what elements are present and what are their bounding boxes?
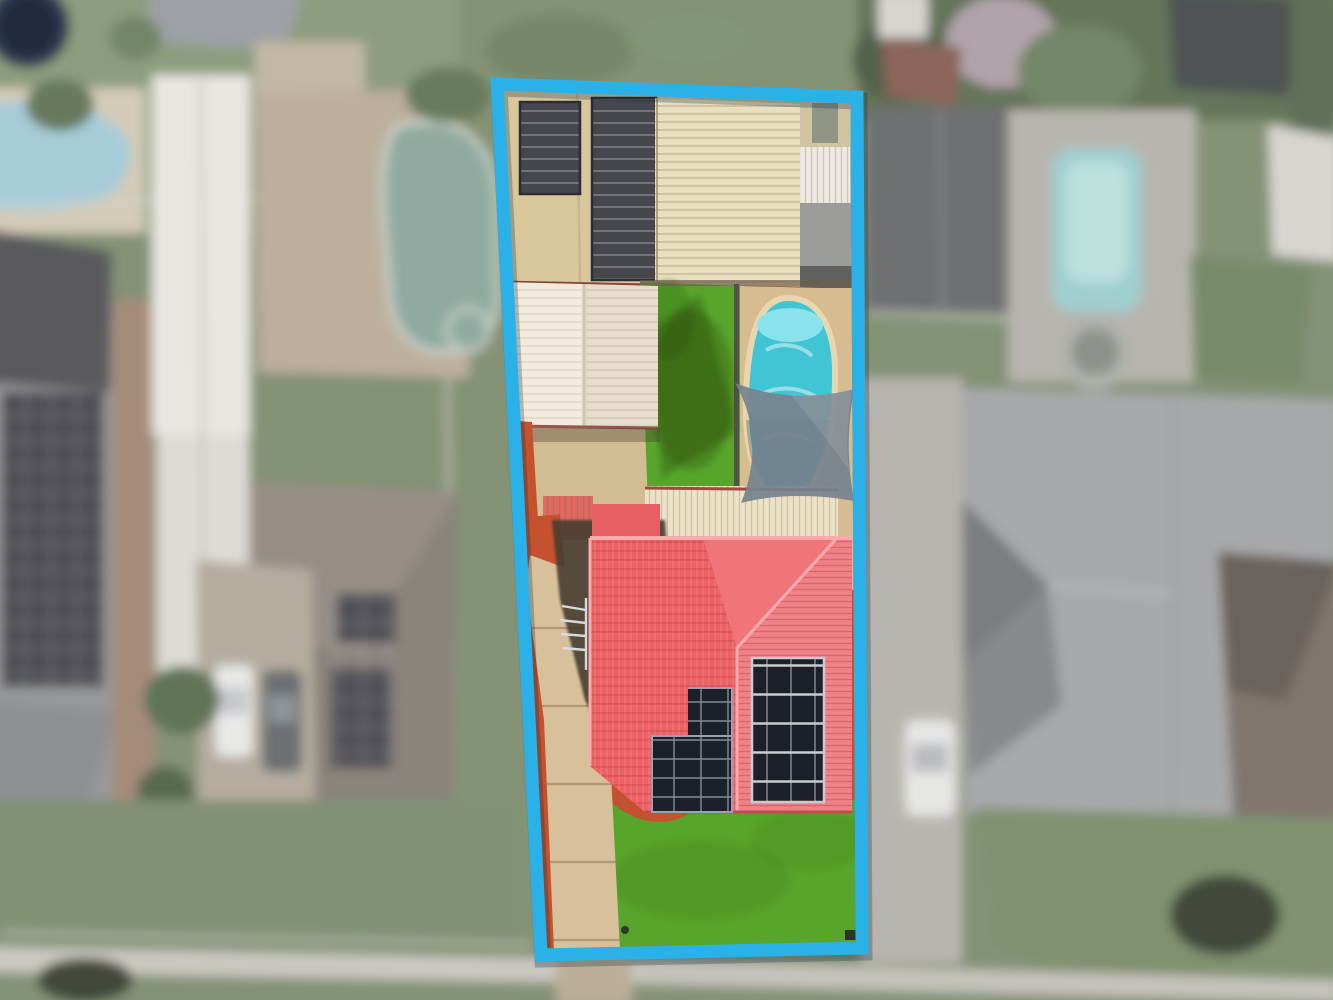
left-solar-grid: [2, 392, 104, 687]
tree-behind-lot-2: [628, 8, 752, 68]
far-right-trees: [1290, 0, 1333, 135]
hedge-top: [406, 67, 490, 123]
white-gable-roof: [505, 282, 660, 442]
rear-fence-shadow: [640, 280, 860, 286]
right-brick-roof: [882, 38, 962, 106]
right-driveway: [862, 378, 962, 963]
tree-shadow-bottom-left: [37, 958, 133, 1000]
solar-array-right: [752, 658, 824, 802]
pool-heater-panel-1: [520, 102, 580, 194]
right-mid-lawn: [1190, 255, 1312, 386]
white-awning-ribs: [800, 147, 850, 203]
solar-panel-grid: [652, 736, 732, 812]
tree-behind-lot: [485, 14, 635, 86]
aerial-photo-canvas: [0, 0, 1333, 1000]
left-tree-2: [109, 16, 161, 60]
side-fence-line: [734, 284, 739, 510]
front-lawn-mottle-2: [750, 810, 870, 870]
solar-panel-grid: [752, 658, 824, 802]
shade-sail: [735, 383, 854, 503]
side-green-panel: [812, 103, 838, 143]
heater-panel-lines: [520, 102, 580, 194]
pool-step-ledge: [757, 308, 823, 342]
aerial-photo: [0, 0, 1333, 1000]
white-roof-ribs: [505, 282, 658, 428]
sail-shadow-on-lawn: [650, 310, 734, 470]
side-gray-wall: [800, 203, 860, 271]
brick-strip: [113, 300, 155, 830]
right-white-car-windshield: [912, 744, 948, 772]
cream-roof-ribs: [655, 98, 802, 288]
tree-mid: [144, 666, 220, 734]
pool-heater-panel-2: [592, 98, 656, 280]
white-car-windshield: [220, 688, 248, 714]
right-spa-inner: [1071, 328, 1119, 376]
gray-car-windshield: [268, 695, 296, 723]
right-gray-building-ridge: [940, 110, 942, 310]
heater-panel-lines: [592, 98, 656, 280]
far-right-white-roof: [1268, 125, 1333, 262]
solar-panel-grid: [688, 688, 732, 738]
red-roof-house: [590, 504, 852, 812]
right-pool-inner: [1066, 162, 1128, 282]
neighbour-spa: [447, 309, 489, 351]
tree-shadow-right: [1170, 875, 1280, 955]
right-white-shed: [878, 0, 928, 38]
left-gray-house-dark-section: [0, 228, 112, 392]
right-dark-shed: [1168, 0, 1305, 96]
left-bottom-lawn: [0, 800, 520, 965]
left-tree: [26, 79, 94, 131]
red-roof-upper-gable: [592, 504, 660, 540]
subject-property: [497, 84, 870, 955]
cream-ribbed-roof: [655, 98, 802, 288]
yard-marker: [621, 926, 629, 934]
brown-house-solar-grid: [330, 593, 396, 768]
right-tree-2: [1018, 24, 1142, 116]
